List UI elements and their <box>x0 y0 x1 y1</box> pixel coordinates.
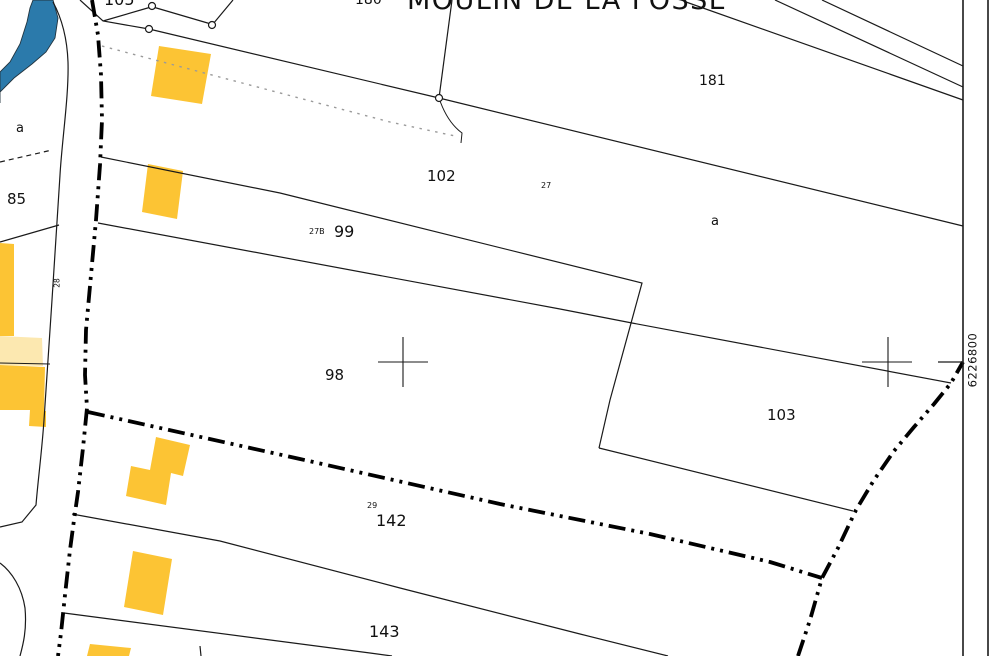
parcel-label-143: 143 <box>369 624 400 640</box>
commune-boundary-diagonal <box>88 412 822 578</box>
parcel-label-142: 142 <box>376 513 407 529</box>
grid-cross <box>862 337 912 387</box>
commune-boundary-curve <box>798 362 963 656</box>
ref-label-27b: 27B <box>309 228 325 236</box>
parcel-label-181: 181 <box>699 74 726 88</box>
parcel-label-105: 105 <box>104 0 135 8</box>
building <box>0 243 14 336</box>
dashed-parcel-line <box>0 150 52 162</box>
commune-boundary-west <box>58 0 102 656</box>
cadastral-map: MOULIN DE LA FOSSE 105 180 181 102 99 98… <box>0 0 990 656</box>
grid-coordinate-label: 6226800 <box>967 333 979 388</box>
parcel-label-102: 102 <box>427 169 456 184</box>
building <box>0 365 46 427</box>
building <box>87 644 131 656</box>
grid-cross <box>378 337 428 387</box>
parcel-label-85: 85 <box>7 192 26 207</box>
building-light <box>0 336 43 366</box>
parcel-label-99: 99 <box>334 224 354 240</box>
parcel-letter-a-right: a <box>711 215 719 228</box>
water-stream <box>0 0 58 103</box>
survey-marker-circle <box>209 22 216 29</box>
buildings-group <box>0 46 211 656</box>
parcel-label-103: 103 <box>767 408 796 423</box>
survey-marker-circle <box>146 26 153 33</box>
survey-marker-circle <box>436 95 443 102</box>
ref-label-29: 29 <box>367 502 377 510</box>
ref-label-27: 27 <box>541 182 551 190</box>
building <box>126 437 190 505</box>
survey-marker-circle <box>149 3 156 10</box>
place-name-title: MOULIN DE LA FOSSE <box>407 0 727 14</box>
map-frame <box>938 0 988 656</box>
building <box>151 46 211 104</box>
parcel-label-98: 98 <box>325 368 344 383</box>
parcel-label-180: 180 <box>355 0 382 7</box>
parcel-letter-a-left: a <box>16 122 24 135</box>
grid-crosses <box>378 337 912 387</box>
map-drawing <box>0 0 990 656</box>
building <box>124 551 172 615</box>
ref-label-28-rotated: 28 <box>53 278 61 288</box>
